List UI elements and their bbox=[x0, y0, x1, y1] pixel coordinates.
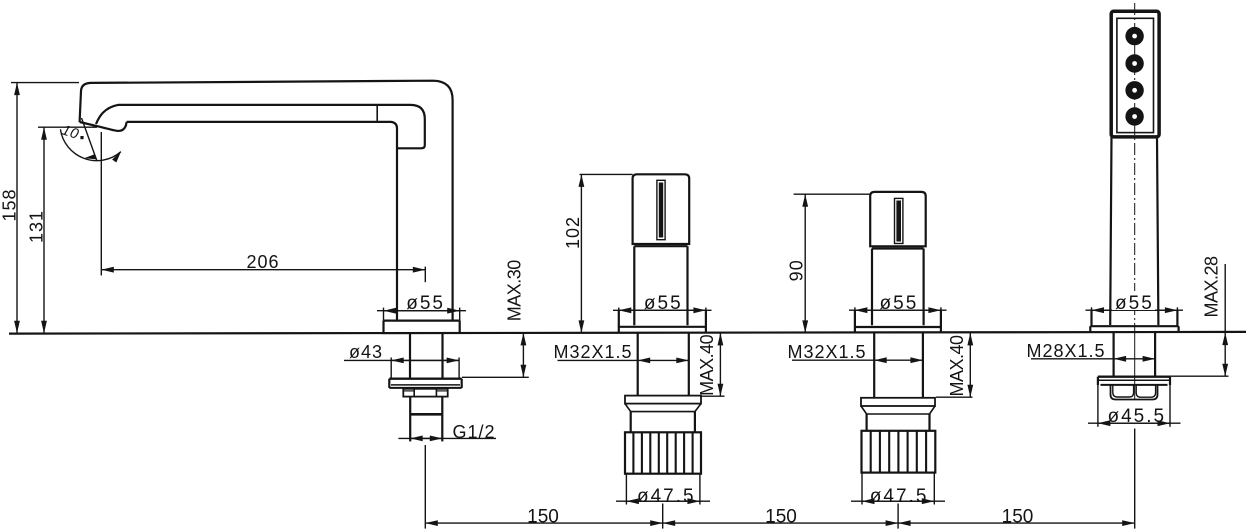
svg-text:MAX.40: MAX.40 bbox=[697, 334, 717, 396]
svg-text:90: 90 bbox=[787, 259, 807, 281]
svg-text:ø55: ø55 bbox=[880, 293, 919, 314]
svg-text:131: 131 bbox=[27, 210, 47, 243]
svg-text:ø47.5: ø47.5 bbox=[870, 486, 929, 507]
svg-text:G1/2: G1/2 bbox=[452, 422, 495, 442]
svg-text:ø43: ø43 bbox=[349, 342, 383, 362]
svg-text:ø45.5: ø45.5 bbox=[1108, 406, 1167, 427]
svg-text:ø55: ø55 bbox=[1115, 293, 1154, 314]
svg-text:150: 150 bbox=[527, 507, 559, 528]
svg-text:102: 102 bbox=[563, 216, 583, 249]
svg-text:150: 150 bbox=[765, 507, 797, 528]
svg-text:ø55: ø55 bbox=[644, 293, 683, 314]
svg-text:MAX.40: MAX.40 bbox=[947, 335, 967, 397]
svg-text:M32X1.5: M32X1.5 bbox=[553, 342, 632, 362]
svg-text:150: 150 bbox=[1002, 507, 1034, 528]
svg-text:10: 10 bbox=[60, 122, 81, 143]
svg-text:M28X1.5: M28X1.5 bbox=[1026, 341, 1105, 361]
svg-text:158: 158 bbox=[0, 188, 20, 221]
svg-text:M32X1.5: M32X1.5 bbox=[787, 342, 866, 362]
svg-text:MAX.30: MAX.30 bbox=[505, 260, 525, 322]
svg-text:ø47.5: ø47.5 bbox=[637, 486, 696, 507]
svg-text:206: 206 bbox=[246, 252, 279, 272]
svg-text:MAX.28: MAX.28 bbox=[1201, 256, 1221, 318]
svg-text:ø55: ø55 bbox=[406, 293, 445, 314]
